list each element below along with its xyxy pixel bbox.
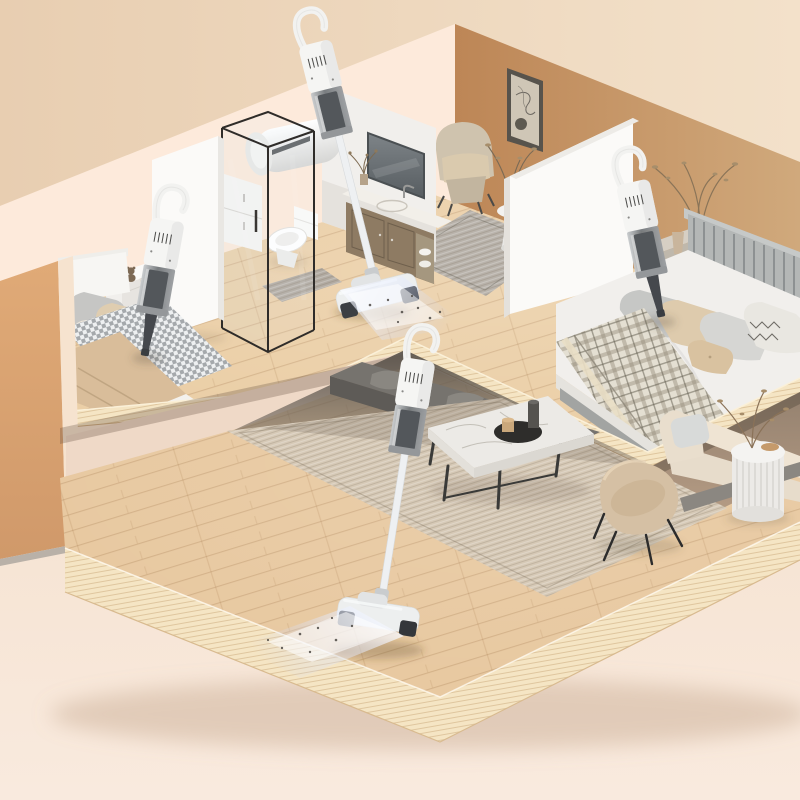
shower-enclosure <box>222 112 314 352</box>
vanity-open-shelf <box>416 233 434 284</box>
table-bottle <box>528 402 539 428</box>
decor-bowl <box>761 443 779 451</box>
accent-armchair <box>594 461 682 564</box>
wall-art-poster <box>507 68 543 152</box>
product-scene <box>0 0 800 800</box>
vase <box>672 232 684 254</box>
apartment-cutaway-render <box>0 0 800 800</box>
